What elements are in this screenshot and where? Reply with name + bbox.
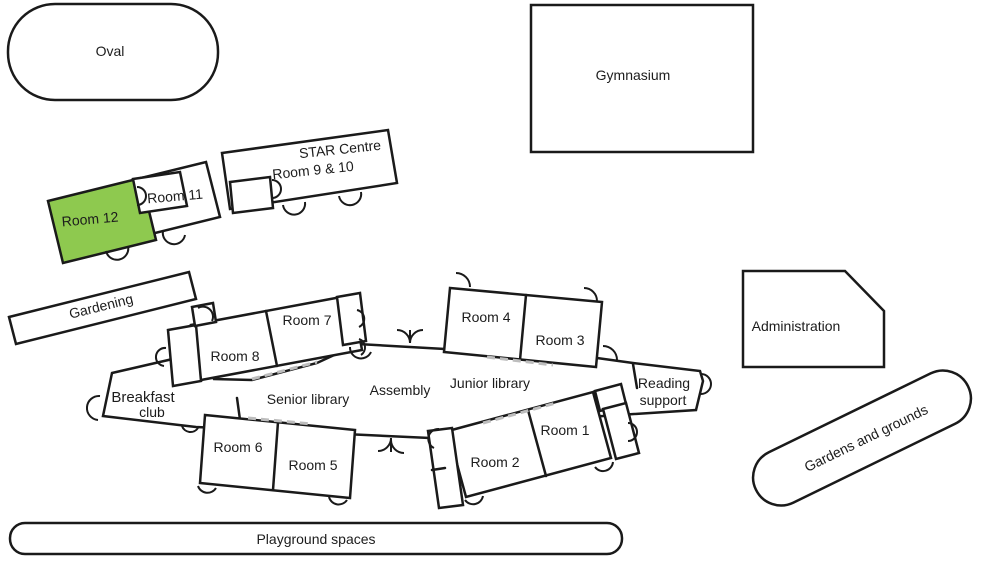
senior-library-label: Senior library	[267, 391, 349, 407]
room-8-label: Room 8	[210, 348, 259, 364]
door-arc	[595, 462, 613, 471]
gymnasium-label: Gymnasium	[596, 67, 671, 83]
door-arc	[163, 231, 185, 244]
junior-library-label: Junior library	[450, 375, 530, 391]
door-arc	[584, 288, 597, 301]
site-map-canvas: Oval Gymnasium STAR Centre Room 9 & 10 R…	[0, 0, 1000, 562]
room-7-right-porch	[337, 293, 366, 345]
reading-support-label-line2: support	[640, 392, 687, 408]
door-arc	[198, 486, 216, 493]
school-site-map: Oval Gymnasium STAR Centre Room 9 & 10 R…	[0, 0, 1000, 562]
room-6-label: Room 6	[213, 439, 262, 455]
star-centre-entry-porch	[230, 177, 273, 213]
reading-support-label-line1: Reading	[638, 375, 690, 391]
breakfast-club-label-line2: club	[139, 404, 165, 420]
oval-label: Oval	[96, 43, 125, 59]
playground-spaces-label: Playground spaces	[256, 531, 375, 547]
door-arc	[339, 192, 361, 205]
door-arc	[87, 396, 100, 420]
double-door-arc	[397, 330, 423, 343]
door-arc	[283, 202, 305, 215]
room-2-label: Room 2	[470, 454, 519, 470]
room-5-label: Room 5	[288, 457, 337, 473]
administration-label: Administration	[752, 318, 841, 334]
door-arc	[456, 273, 470, 287]
assembly-label: Assembly	[370, 382, 431, 398]
room-1-label: Room 1	[540, 422, 589, 438]
room-4-label: Room 4	[461, 309, 510, 325]
room-7-label: Room 7	[282, 312, 331, 328]
room-8-left-porch	[168, 325, 201, 386]
double-door-arc	[378, 438, 404, 453]
room-3-label: Room 3	[535, 332, 584, 348]
